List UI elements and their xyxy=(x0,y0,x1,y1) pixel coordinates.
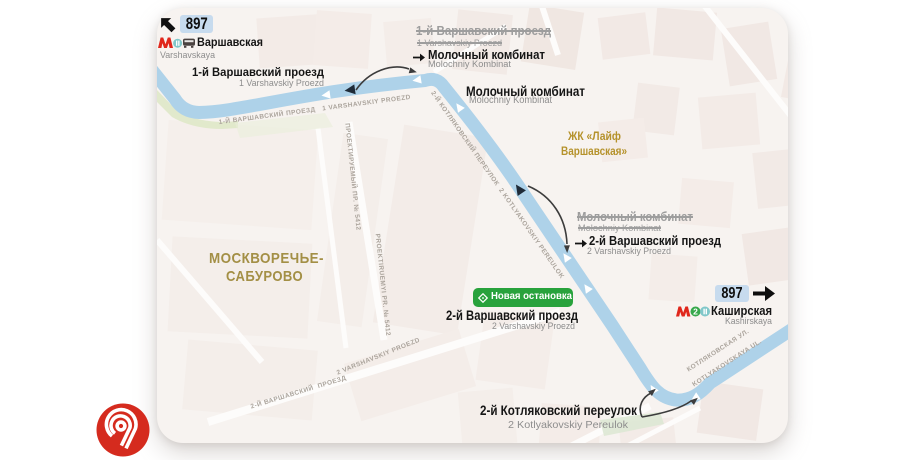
svg-text:2: 2 xyxy=(693,307,698,317)
